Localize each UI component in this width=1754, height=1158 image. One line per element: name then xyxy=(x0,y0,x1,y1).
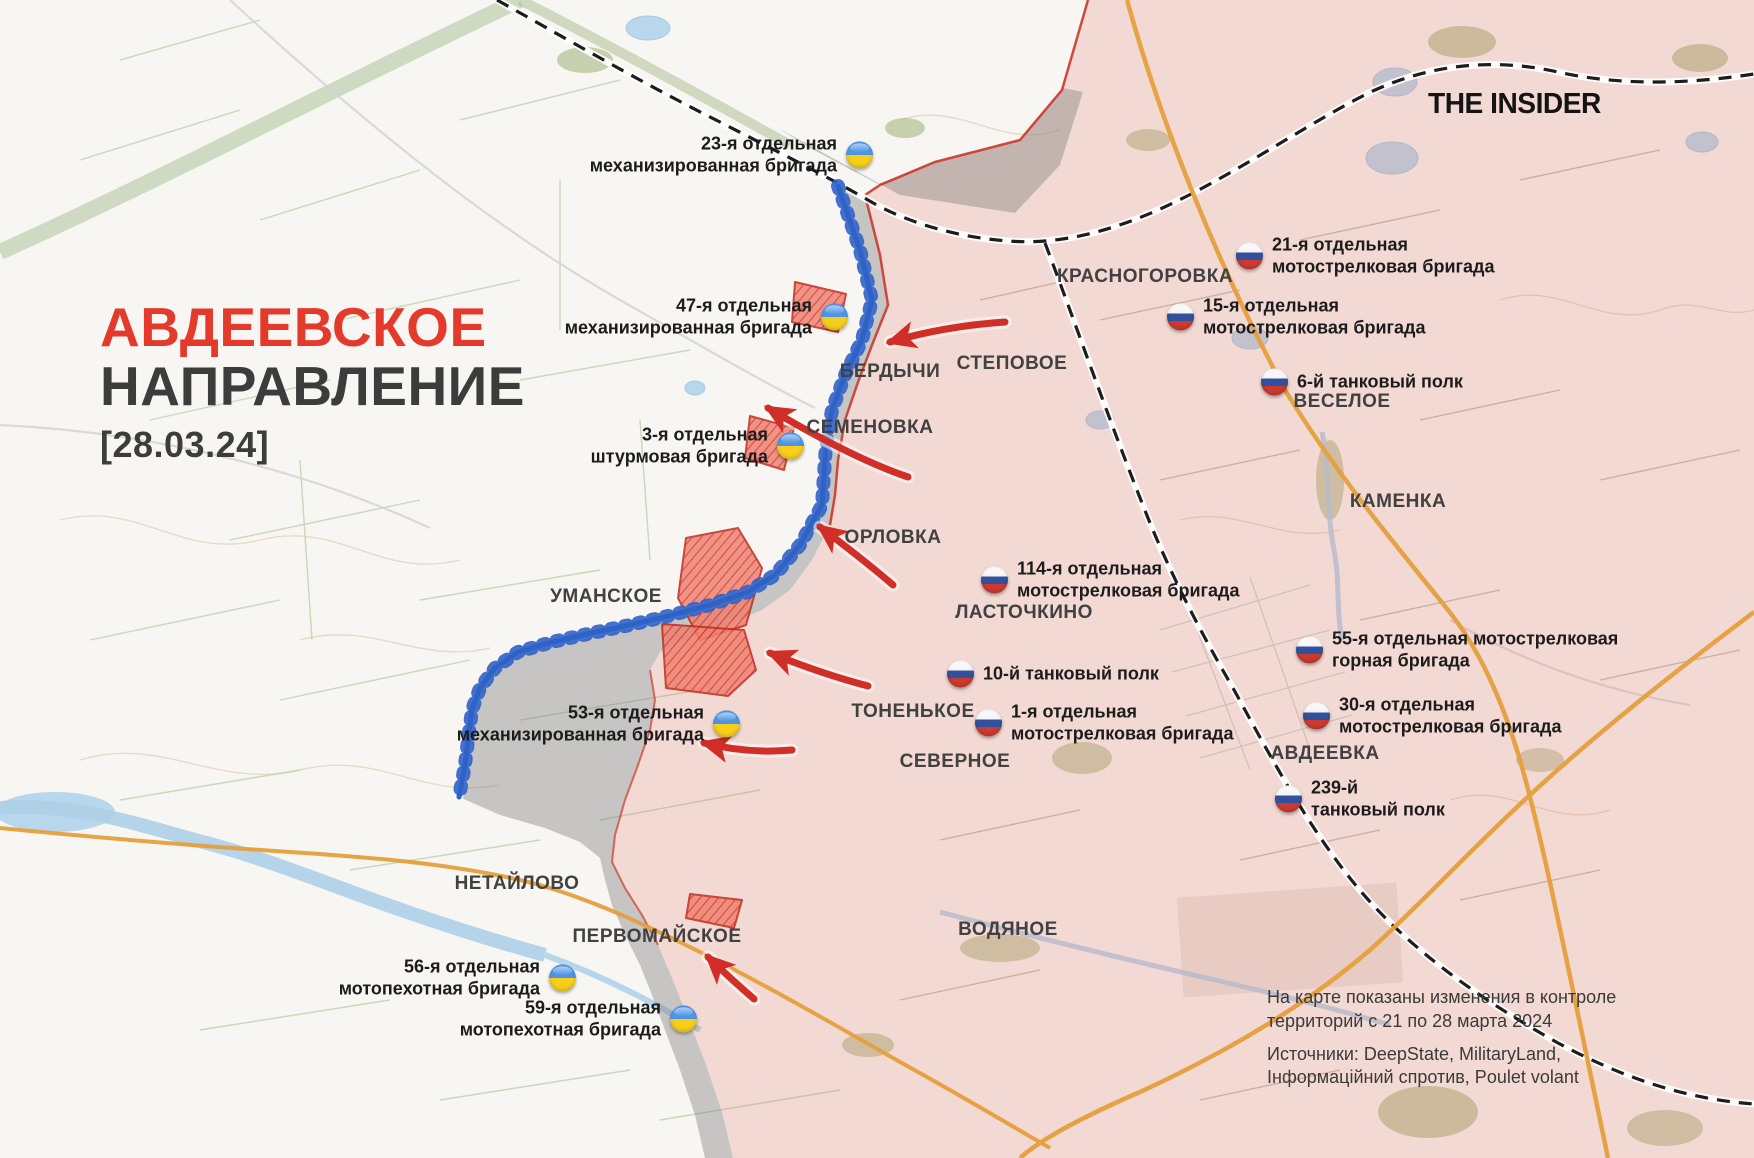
russia-flag-icon xyxy=(975,710,1002,737)
unit-text: 10-й танковый полк xyxy=(983,663,1159,685)
unit-label-ua-59th-motorized-brigade: 59-я отдельная мотопехотная бригада xyxy=(460,997,697,1040)
unit-text: 21-я отдельная xyxy=(1272,234,1494,256)
russia-flag-icon xyxy=(1275,786,1302,813)
unit-text: 239-й xyxy=(1311,777,1445,799)
unit-text: мотострелковая бригада xyxy=(1272,256,1494,278)
place-label-kamianka: КАМЕНКА xyxy=(1350,491,1446,513)
unit-label-ru-21st-rifle-brigade: 21-я отдельная мотострелковая бригада xyxy=(1236,234,1494,277)
unit-text: механизированная бригада xyxy=(565,317,812,339)
unit-label-ua-56th-motorized-brigade: 56-я отдельная мотопехотная бригада xyxy=(339,956,576,999)
ukraine-flag-icon xyxy=(777,433,804,460)
place-label-lastochkyne: ЛАСТОЧКИНО xyxy=(955,602,1093,624)
unit-text: 59-я отдельная xyxy=(460,997,661,1019)
unit-text: мотострелковая бригада xyxy=(1339,716,1561,738)
unit-label-ru-10th-tank-regiment: 10-й танковый полк xyxy=(947,661,1159,688)
unit-text: 53-я отдельная xyxy=(457,702,704,724)
ukraine-flag-icon xyxy=(549,965,576,992)
unit-text: механизированная бригада xyxy=(457,724,704,746)
title-date: [28.03.24] xyxy=(100,426,525,465)
russia-flag-icon xyxy=(1296,637,1323,664)
footnote-line: На карте показаны изменения в контроле xyxy=(1267,986,1616,1010)
russia-flag-icon xyxy=(1303,703,1330,730)
title-line-2: НАПРАВЛЕНИЕ xyxy=(100,357,525,416)
place-label-pervomaiske: ПЕРВОМАЙСКОЕ xyxy=(572,926,741,948)
unit-label-ru-6th-tank-regiment: 6-й танковый полк xyxy=(1261,369,1463,396)
unit-text: 30-я отдельная xyxy=(1339,694,1561,716)
unit-text: мотопехотная бригада xyxy=(339,978,540,1000)
unit-text: танковый полк xyxy=(1311,799,1445,821)
the-insider-logo: THE INSIDER xyxy=(1428,88,1601,121)
place-label-orlivka: ОРЛОВКА xyxy=(845,527,942,549)
unit-label-ua-47th-mech-brigade: 47-я отдельная механизированная бригада xyxy=(565,295,848,338)
russia-flag-icon xyxy=(947,661,974,688)
unit-text: 1-я отдельная xyxy=(1011,701,1233,723)
ukraine-flag-icon xyxy=(821,304,848,331)
unit-text: 23-я отдельная xyxy=(590,133,837,155)
unit-label-ru-114th-rifle-brigade: 114-я отдельная мотострелковая бригада xyxy=(981,558,1239,601)
russia-flag-icon xyxy=(1167,304,1194,331)
unit-label-ru-15th-rifle-brigade: 15-я отдельная мотострелковая бригада xyxy=(1167,295,1425,338)
map-footnote: На карте показаны изменения в контроле т… xyxy=(1267,986,1616,1090)
russia-flag-icon xyxy=(1261,369,1288,396)
unit-text: 15-я отдельная xyxy=(1203,295,1425,317)
sources-line: Источники: DeepState, MilitaryLand, xyxy=(1267,1043,1616,1067)
place-label-avdiivka: АВДЕЕВКА xyxy=(1270,743,1379,765)
unit-text: мотострелковая бригада xyxy=(1203,317,1425,339)
place-label-stepove: СТЕПОВОЕ xyxy=(957,353,1068,375)
sources-line: Інформаційний спротив, Poulet volant xyxy=(1267,1066,1616,1090)
place-label-semenivka: СЕМЕНОВКА xyxy=(807,417,934,439)
unit-text: мотострелковая бригада xyxy=(1011,723,1233,745)
footnote-line: территорий с 21 по 28 марта 2024 xyxy=(1267,1010,1616,1034)
place-label-severne: СЕВЕРНОЕ xyxy=(900,751,1011,773)
place-label-berdychi: БЕРДЫЧИ xyxy=(840,361,940,383)
unit-text: мотострелковая бригада xyxy=(1017,580,1239,602)
place-label-vodiane: ВОДЯНОЕ xyxy=(958,919,1058,941)
unit-text: 47-я отдельная xyxy=(565,295,812,317)
unit-label-ru-239th-tank-regiment: 239-й танковый полк xyxy=(1275,777,1445,820)
map-canvas xyxy=(0,0,1754,1158)
unit-text: механизированная бригада xyxy=(590,155,837,177)
unit-text: 3-я отдельная xyxy=(591,424,768,446)
unit-text: 114-я отдельная xyxy=(1017,558,1239,580)
unit-text: мотопехотная бригада xyxy=(460,1019,661,1041)
unit-label-ua-3rd-assault-brigade: 3-я отдельная штурмовая бригада xyxy=(591,424,804,467)
unit-text: 56-я отдельная xyxy=(339,956,540,978)
map-title: АВДЕЕВСКОЕ НАПРАВЛЕНИЕ [28.03.24] xyxy=(100,298,525,465)
ukraine-flag-icon xyxy=(713,711,740,738)
map-screenshot: АВДЕЕВСКОЕ НАПРАВЛЕНИЕ [28.03.24] THE IN… xyxy=(0,0,1754,1158)
unit-label-ru-55th-mountain-brigade: 55-я отдельная мотострелковая горная бри… xyxy=(1296,628,1618,671)
unit-label-ru-30th-rifle-brigade: 30-я отдельная мотострелковая бригада xyxy=(1303,694,1561,737)
unit-label-ua-23rd-mech-brigade: 23-я отдельная механизированная бригада xyxy=(590,133,873,176)
unit-label-ru-1st-rifle-brigade: 1-я отдельная мотострелковая бригада xyxy=(975,701,1233,744)
place-label-tonenke: ТОНЕНЬКОЕ xyxy=(851,701,974,723)
ukraine-flag-icon xyxy=(846,142,873,169)
unit-text: 55-я отдельная мотострелковая xyxy=(1332,628,1618,650)
russia-flag-icon xyxy=(981,567,1008,594)
unit-text: штурмовая бригада xyxy=(591,446,768,468)
unit-text: 6-й танковый полк xyxy=(1297,371,1463,393)
russia-flag-icon xyxy=(1236,243,1263,270)
place-label-krasnohorivka: КРАСНОГОРОВКА xyxy=(1057,266,1233,288)
place-label-netailove: НЕТАЙЛОВО xyxy=(455,873,580,895)
unit-label-ua-53rd-mech-brigade: 53-я отдельная механизированная бригада xyxy=(457,702,740,745)
unit-text: горная бригада xyxy=(1332,650,1618,672)
ukraine-flag-icon xyxy=(670,1006,697,1033)
title-line-1: АВДЕЕВСКОЕ xyxy=(100,298,525,357)
place-label-umanske: УМАНСКОЕ xyxy=(550,586,662,608)
